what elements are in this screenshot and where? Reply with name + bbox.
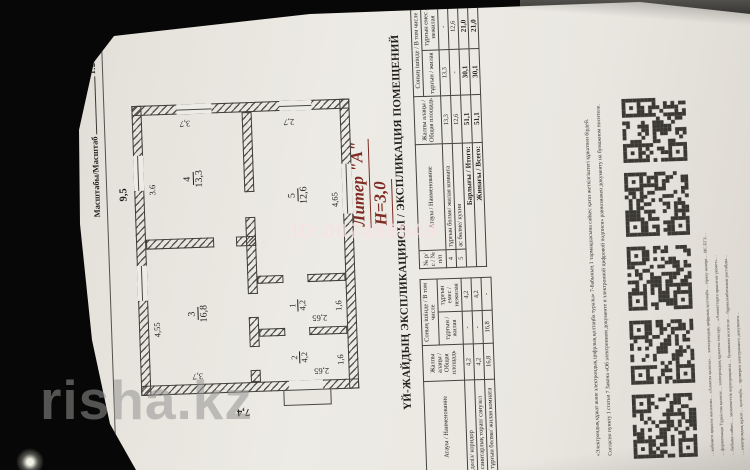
dim-room2-bottom: 1,6 <box>335 354 345 365</box>
cell-name: тұрғын бөлме/ жилая комната <box>485 379 498 470</box>
qr-code-icon <box>632 393 698 459</box>
scale-value: 1:200 <box>86 54 97 74</box>
room3-number: 3 <box>186 307 198 320</box>
scale-label: Масштабы/Масштаб <box>89 136 102 217</box>
light-reflection <box>0 440 60 470</box>
listing-photo: КУРЫЛЫС ЖОСПАРЫ / ПЛАН СТРОЕНИЯ Литерлер… <box>0 0 750 470</box>
cell-num: 5 <box>456 249 467 267</box>
wall-mid-seg4 <box>242 112 255 192</box>
dim-room2-side: 2,65 <box>314 366 329 377</box>
wall-r3-r4-upper <box>146 237 214 249</box>
room4-label: 4 13,3 <box>180 139 206 220</box>
dim-room3-top: 4,55 <box>152 322 163 337</box>
window-room5-side <box>279 100 311 111</box>
totals-living: 30,1 <box>469 48 481 94</box>
qr-code-icon <box>627 245 693 311</box>
qr-code-icon <box>629 319 695 385</box>
dim-room1-side: 2,65 <box>312 313 327 324</box>
room2-label: 2 4,2 <box>289 336 309 379</box>
cell-nonliving: - <box>481 277 492 310</box>
wall-r1-r5-upper <box>257 275 283 284</box>
floor-line: 1 кабат/этаж <box>63 0 76 70</box>
listing-id-watermark: ID:007489949 <box>292 220 437 244</box>
plan-overall-width: 9,5 <box>118 188 129 202</box>
room2-area: 4,2 <box>299 336 309 378</box>
qr-code-row <box>617 0 700 459</box>
dim-room4-side: 3,7 <box>179 119 190 129</box>
scale-underline <box>87 76 97 134</box>
col-name: Атауы / Наименование <box>424 380 468 470</box>
dim-room5-bottom: 4,65 <box>329 192 340 207</box>
col-living: тұрғын / жилая <box>422 50 441 97</box>
totals-total: 51,1 <box>471 94 483 142</box>
wall-mid-seg2 <box>249 317 260 347</box>
col-living: тұрғын / жилая <box>438 311 463 345</box>
room3-label: 3 16,8 <box>185 274 211 355</box>
wall-mid-seg3 <box>245 217 258 294</box>
cell-num: 4 <box>446 249 457 267</box>
scale-row: Масштабы/Масштаб1:200 <box>86 54 102 217</box>
totals-nonliving: 21,0 <box>467 2 479 48</box>
room4-number: 4 <box>182 173 194 186</box>
wall-right <box>131 99 349 117</box>
room5-number: 5 <box>286 189 298 202</box>
wall-top <box>131 106 151 396</box>
cell-living: 16,8 <box>482 310 493 343</box>
wall-r1-r5-lower <box>307 273 345 282</box>
liter-floor-block: Литерлер/Литеры: А 1 кабат/этаж <box>53 0 76 71</box>
window-room4-side <box>176 103 211 114</box>
room4-area: 13,3 <box>192 139 206 219</box>
dim-room5-side: 2,7 <box>283 117 294 127</box>
qr-code-icon <box>621 97 687 163</box>
col-num: № р/с / № п/п <box>419 250 447 269</box>
dim-room4-top: 3.6 <box>147 185 157 196</box>
liter-line: Литерлер/Литеры: А <box>53 0 66 71</box>
window-room4 <box>133 156 144 191</box>
col-total: Жалпы алаңы / Общая площадь <box>422 344 464 381</box>
qr-code-icon <box>624 171 690 237</box>
room1-area: 4,2 <box>298 284 308 326</box>
window-room3 <box>137 266 148 301</box>
room3-area: 16,8 <box>197 274 211 354</box>
liter-annotation: Литер "А" Н=3,0 <box>347 138 394 228</box>
entrance-step <box>283 388 332 406</box>
col-nonliving: тұрғын емес / нежилая <box>437 278 462 312</box>
room1-label: 1 4,2 <box>288 284 308 327</box>
cell-total: 16,8 <box>483 343 494 379</box>
wall-r2-r1-lower <box>309 326 347 335</box>
explication-table-left: № р/с / № п/п Атауы / Наименование Жалпы… <box>420 277 499 470</box>
dim-room1-bottom: 1,6 <box>333 300 343 311</box>
col-nonliving: тұрғын емес / нежилая <box>420 4 439 51</box>
col-total: Жалпы алаңы / Общая площадь <box>414 96 443 145</box>
liter-annotation-line1: Литер "А" <box>347 139 372 228</box>
wall-r2-r1-upper <box>259 328 285 337</box>
floor-plan: 9,5 7,4 <box>131 99 359 396</box>
site-watermark: risha.kz <box>40 368 253 432</box>
